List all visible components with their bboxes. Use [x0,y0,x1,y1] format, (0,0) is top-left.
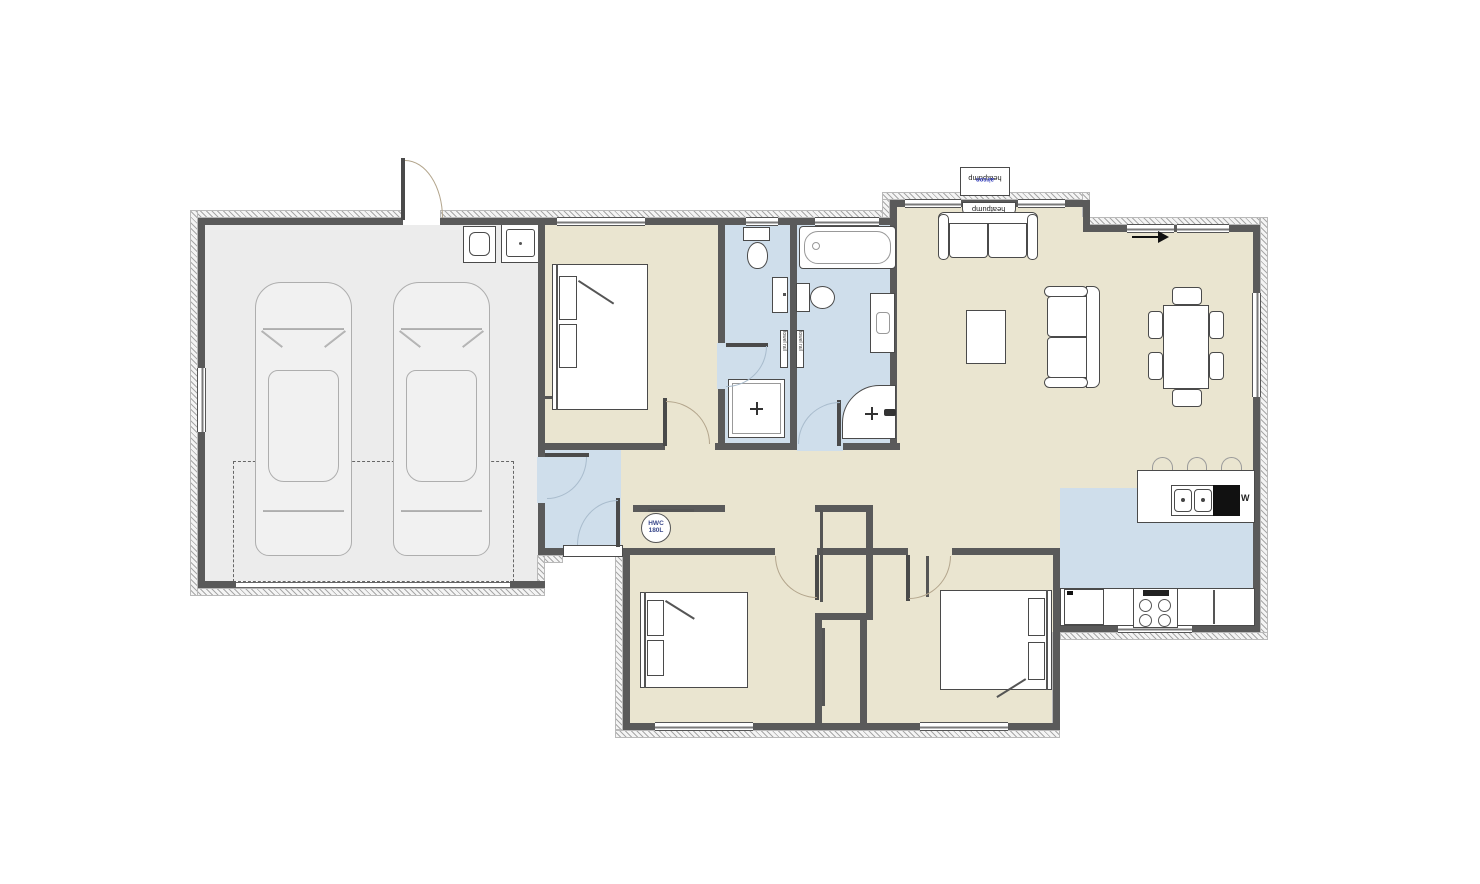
wall [198,581,236,588]
hwc-label-line2: 180L [649,528,664,535]
wall [1053,548,1060,730]
bench-divider [1213,590,1215,624]
door-opening-bed3 [908,547,952,556]
bed-bedroom3 [940,590,1052,690]
ensuite-toilet [747,242,768,269]
dishwasher [1213,485,1240,516]
aircon-label: aircon [976,175,994,182]
bed-master [552,264,648,410]
window [1018,199,1065,208]
towel-rail-bathroom: towel rail [796,330,804,368]
bathroom-toilet [810,286,835,309]
wall [545,443,900,450]
closet-wall [815,613,822,730]
wall [718,225,725,443]
door-opening-garage-foyer [537,457,546,503]
closet-wall [860,613,867,730]
window [1177,224,1229,233]
bed-bedroom2 [640,592,748,688]
cladding-bottom-right [1060,632,1268,640]
window [557,217,645,226]
closet-slider [822,628,825,706]
wall [198,218,403,225]
floor-plan: towel rail towel rail heatpump aircon he… [0,0,1480,884]
dining-set [1146,285,1228,409]
ensuite-shower [728,379,785,438]
towel-rail-label: towel rail [781,331,786,351]
kitchen-sink [1171,485,1215,516]
wall [538,218,545,555]
towel-rail-ensuite: towel rail [780,330,788,368]
garage-door-panel [235,582,512,588]
cladding-top-left [190,210,403,218]
car-left [255,282,352,556]
wall [623,548,630,730]
car-right [393,282,490,556]
ensuite-vanity [772,277,788,313]
dining-table [1163,305,1209,389]
bathtub [799,226,896,269]
coffee-table [966,310,1006,364]
bar-stool [1187,457,1207,470]
wall [510,581,545,588]
hall-living-link-floor [897,440,1060,548]
bathroom-vanity [870,293,895,353]
door-opening-bed2 [775,547,817,556]
window [920,722,1008,731]
window [815,217,879,226]
window [905,199,961,208]
cladding-right [1260,217,1268,640]
ensuite-cistern [743,227,770,241]
sofa-3seat [938,212,1038,262]
cladding-bed-bottom [615,730,1060,738]
front-door [563,545,623,557]
window [655,722,753,731]
dishwasher-label: W [1241,493,1250,503]
bathroom-cistern [796,283,810,312]
fridge [1064,589,1104,625]
hot-water-cylinder: HWC 180L [641,513,671,543]
washing-machine [463,226,496,263]
closet-wall [815,505,873,512]
laundry-tub [501,224,540,263]
cladding-garage-bottom [190,588,545,596]
window [1252,293,1261,397]
door-opening-ensuite [717,343,726,389]
hwc-cupboard-slider [648,509,694,512]
wall [440,218,545,225]
window [746,217,778,226]
towel-rail-label: towel rail [797,331,802,351]
heatpump-outdoor-unit: heatpump aircon [960,167,1010,196]
wall [623,548,1060,555]
sofa-2seat [1042,286,1100,388]
cladding-top-right [1088,217,1260,225]
entry-arrow [1132,231,1170,243]
wall [1253,225,1260,632]
garage-entry-door-swing [405,160,443,218]
stove [1133,588,1178,628]
closet-wall [866,505,873,620]
cladding-bed2-left [615,555,623,730]
window [197,368,206,432]
closet-slider [820,510,823,602]
